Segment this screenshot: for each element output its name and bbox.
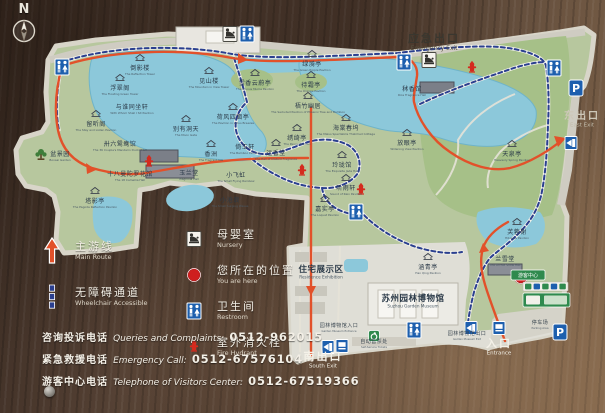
phone-numbers: 咨询投诉电话 Queries and Complaints: 0512-9620… xyxy=(42,326,359,389)
svg-text:海棠春坞: 海棠春坞 xyxy=(333,124,359,132)
svg-text:The Green Ripple Pavilion: The Green Ripple Pavilion xyxy=(292,68,330,72)
svg-text:卅六鸳鸯馆: 卅六鸳鸯馆 xyxy=(104,140,137,148)
svg-text:苏州园林博物馆: 苏州园林博物馆 xyxy=(381,293,444,304)
svg-text:The Floating Green Tower: The Floating Green Tower xyxy=(101,92,140,96)
svg-text:与谁同坐轩: 与谁同坐轩 xyxy=(116,103,149,111)
svg-text:The Small Surging Waves: The Small Surging Waves xyxy=(211,204,249,208)
legend-zh: 您所在的位置 xyxy=(217,265,295,277)
svg-text:Garden Museum Exit: Garden Museum Exit xyxy=(453,337,481,341)
svg-text:Magnolia Hall: Magnolia Hall xyxy=(179,177,199,181)
legend-zh: 无障碍通道 xyxy=(75,287,148,299)
legend-item-nursery: 母婴室Nursery xyxy=(180,224,295,254)
restroom-icon xyxy=(397,54,411,70)
svg-text:The Moon Gate: The Moon Gate xyxy=(174,133,197,137)
svg-text:待霜亭: 待霜亭 xyxy=(301,81,321,89)
svg-text:The Mountain in View Tower: The Mountain in View Tower xyxy=(188,85,230,89)
legend-item-wheelchair: 无障碍通道Wheelchair Accessible xyxy=(38,282,148,312)
legend-routes: 主游线Main Route无障碍通道Wheelchair Accessible xyxy=(38,236,148,312)
svg-text:玉兰堂: 玉兰堂 xyxy=(179,169,199,177)
svg-text:嘉实亭: 嘉实亭 xyxy=(315,205,335,213)
map-label-32: 住宅展示区Residence Exhibition xyxy=(298,264,343,279)
svg-text:Self-Service Tickets: Self-Service Tickets xyxy=(361,345,388,349)
svg-text:兰雪堂: 兰雪堂 xyxy=(495,255,515,263)
svg-text:听雨轩: 听雨轩 xyxy=(336,184,356,192)
map-label-31: 盆景园Bonsai Garden xyxy=(49,150,70,162)
parking-icon: P xyxy=(553,324,567,340)
legend-zh: 主游线 xyxy=(75,241,114,253)
svg-text:住宅展示区: 住宅展示区 xyxy=(298,264,343,275)
svg-text:The Hall of Distant Fragrance: The Hall of Distant Fragrance xyxy=(254,157,297,161)
svg-text:Parking Area: Parking Area xyxy=(531,326,548,330)
svg-text:The Pagoda Reflection Pavilion: The Pagoda Reflection Pavilion xyxy=(72,205,117,209)
nursery-icon xyxy=(187,232,201,247)
svg-text:浮翠阁: 浮翠阁 xyxy=(110,84,130,92)
svg-text:The Prunus Mume Pavilion: The Prunus Mume Pavilion xyxy=(235,87,274,91)
svg-text:天泉亭: 天泉亭 xyxy=(502,150,522,158)
svg-text:Entrance: Entrance xyxy=(487,351,512,357)
restroom-icon xyxy=(55,59,69,75)
legend-en: Main Route xyxy=(75,253,114,261)
svg-text:The Malus Spectabilis Thatched: The Malus Spectabilis Thatched Cottage xyxy=(316,132,375,136)
svg-text:雪香云蔚亭: 雪香云蔚亭 xyxy=(239,79,272,87)
legend-en: Nursery xyxy=(217,241,256,249)
svg-text:The Loquat Pavilion: The Loquat Pavilion xyxy=(310,213,339,217)
svg-text:The 18 Camellia Hall: The 18 Camellia Hall xyxy=(114,178,145,182)
ticket-icon xyxy=(493,322,505,335)
svg-text:小飞虹: 小飞虹 xyxy=(226,171,246,179)
svg-text:玲珑馆: 玲珑馆 xyxy=(332,161,352,169)
svg-text:The Peony Pavilion: The Peony Pavilion xyxy=(282,142,310,146)
visitor-center-label: 游客中心 xyxy=(518,272,538,279)
svg-text:绣绮亭: 绣绮亭 xyxy=(287,134,307,142)
svg-text:The 36 Couple's Mandarin Ducks: The 36 Couple's Mandarin Ducks Hall xyxy=(92,148,147,152)
park-map-sign: N xyxy=(0,0,605,413)
legend-item-restroom: 卫生间Restroom xyxy=(180,296,295,326)
svg-text:Widening View Pavilion: Widening View Pavilion xyxy=(390,147,423,151)
svg-text:别有洞天: 别有洞天 xyxy=(173,125,199,133)
svg-text:放眼亭: 放眼亭 xyxy=(397,139,417,147)
map-label-39: 东出口East Exit xyxy=(564,109,600,129)
phone-line-2: 游客中心电话 Telephone of Visitors Center: 051… xyxy=(42,370,359,389)
phone-line-1: 紧急救援电话 Emergency Call: 0512-67576104 xyxy=(42,348,359,367)
svg-text:东出口: 东出口 xyxy=(564,109,600,122)
map-label-2: 与谁同坐轩With Whom Shall I Sit Pavilion xyxy=(110,103,153,115)
svg-text:East Exit: East Exit xyxy=(570,123,595,129)
wheelchair-icon xyxy=(49,285,54,308)
svg-text:应急出口: 应急出口 xyxy=(408,31,460,45)
you-are-here-icon xyxy=(188,269,201,282)
svg-text:The Secluded Pavilion of Phoen: The Secluded Pavilion of Phoenix Tree an… xyxy=(270,110,345,114)
svg-text:P: P xyxy=(556,326,564,339)
svg-text:倚玉轩: 倚玉轩 xyxy=(235,143,255,151)
svg-text:芙蓉榭: 芙蓉榭 xyxy=(507,228,527,236)
svg-text:Heavenly Spring Pavilion: Heavenly Spring Pavilion xyxy=(494,158,530,162)
svg-text:The Orange Pavilion: The Orange Pavilion xyxy=(296,89,326,93)
map-label-10: 玉兰堂Magnolia Hall xyxy=(179,169,199,181)
svg-text:Emergency Exit: Emergency Exit xyxy=(410,45,458,52)
svg-text:The Stay and Listen Pavilion: The Stay and Listen Pavilion xyxy=(75,128,117,132)
svg-text:The Pavilion in Lotus Breezes: The Pavilion in Lotus Breezes xyxy=(211,121,255,125)
restroom-icon xyxy=(349,204,363,220)
svg-text:With Whom Shall I Sit Pavilion: With Whom Shall I Sit Pavilion xyxy=(110,111,153,115)
restroom-icon xyxy=(240,26,254,42)
svg-text:入口: 入口 xyxy=(486,337,512,350)
svg-text:Rice Fragrance Hall: Rice Fragrance Hall xyxy=(398,93,426,97)
map-label-35: 自动售票处Self-Service Tickets xyxy=(360,338,388,349)
svg-text:Han Qing Pavilion: Han Qing Pavilion xyxy=(415,271,441,275)
svg-text:梧竹幽居: 梧竹幽居 xyxy=(295,102,321,110)
svg-text:Residence Exhibition: Residence Exhibition xyxy=(299,274,343,279)
svg-text:秫香馆: 秫香馆 xyxy=(402,85,422,93)
svg-text:盆景园: 盆景园 xyxy=(50,150,70,158)
svg-text:倒影楼: 倒影楼 xyxy=(130,64,150,72)
svg-text:Bonsai Garden: Bonsai Garden xyxy=(49,158,70,162)
svg-text:见山楼: 见山楼 xyxy=(199,77,219,85)
svg-text:The Orchid Snow Hall: The Orchid Snow Hall xyxy=(489,263,521,267)
svg-text:荷风四面亭: 荷风四面亭 xyxy=(217,113,250,121)
svg-text:The Small Flying Rainbow: The Small Flying Rainbow xyxy=(216,179,255,183)
svg-text:P: P xyxy=(572,82,580,95)
svg-text:小沧浪: 小沧浪 xyxy=(220,196,240,204)
legend-item-you-are-here: 您所在的位置You are here xyxy=(180,260,295,290)
legend-en: Restroom xyxy=(217,313,256,321)
map-label-41: 入口Entrance xyxy=(486,337,512,357)
map-label-36: 园林博物馆出口Garden Museum Exit xyxy=(448,330,487,341)
service-sign xyxy=(523,293,570,307)
nursery-icon xyxy=(422,53,436,68)
svg-text:香洲: 香洲 xyxy=(204,150,217,158)
legend-en: Wheelchair Accessible xyxy=(75,299,148,307)
restroom-icon xyxy=(407,322,421,338)
map-label-37: 停车场Parking Area xyxy=(531,319,548,330)
legend-zh: 卫生间 xyxy=(217,301,256,313)
restroom-icon xyxy=(547,60,561,76)
parking-icon: P xyxy=(569,80,583,96)
svg-text:The Reflection Tower: The Reflection Tower xyxy=(124,72,156,76)
mounting-screw xyxy=(44,386,55,397)
svg-text:The Fragrant Isle: The Fragrant Isle xyxy=(198,158,224,162)
restroom-icon xyxy=(187,303,201,319)
svg-text:Suzhou Garden Museum: Suzhou Garden Museum xyxy=(387,303,438,308)
svg-text:留听阁: 留听阁 xyxy=(86,120,106,128)
svg-text:远香堂: 远香堂 xyxy=(266,149,286,157)
svg-text:Sound of Rain Pavilion: Sound of Rain Pavilion xyxy=(330,192,362,196)
svg-text:十八曼陀罗花馆: 十八曼陀罗花馆 xyxy=(107,170,153,178)
map-label-38: 应急出口Emergency Exit xyxy=(408,31,460,52)
map-label-13: 小沧浪The Small Surging Waves xyxy=(211,196,249,208)
legend-zh: 母婴室 xyxy=(217,229,256,241)
svg-text:涵青亭: 涵青亭 xyxy=(418,263,438,271)
map-label-33: 苏州园林博物馆Suzhou Garden Museum xyxy=(381,293,444,308)
phone-line-0: 咨询投诉电话 Queries and Complaints: 0512-9620… xyxy=(42,326,359,345)
legend-en: You are here xyxy=(217,277,295,285)
main-route-icon xyxy=(45,238,59,263)
svg-text:Hibiscus Pavilion: Hibiscus Pavilion xyxy=(505,236,529,240)
svg-text:The Bamboo Pavilion: The Bamboo Pavilion xyxy=(229,151,260,155)
svg-text:The Exquisite Jade Hall: The Exquisite Jade Hall xyxy=(324,169,358,173)
exit-run-icon xyxy=(565,137,577,150)
svg-text:塔影亭: 塔影亭 xyxy=(85,197,105,205)
legend-item-main-route: 主游线Main Route xyxy=(38,236,148,266)
nursery-icon xyxy=(223,27,237,42)
svg-text:绿漪亭: 绿漪亭 xyxy=(302,60,322,68)
